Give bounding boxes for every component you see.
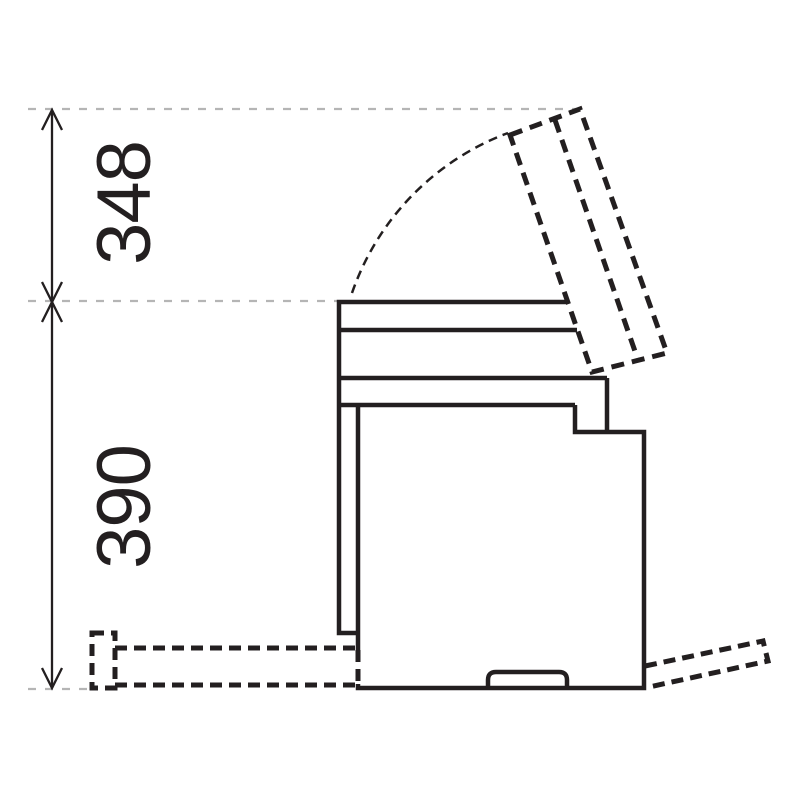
dimension-label-lower: 390 (82, 445, 167, 569)
lid-swing-arc (352, 133, 508, 293)
input-tray-end-cap (92, 633, 115, 688)
output-tray-extended (645, 641, 768, 687)
bottom-foot (488, 672, 567, 688)
printer-side-dimension-diagram: 348 390 (0, 0, 800, 800)
dimension-labels: 348 390 (82, 141, 167, 569)
dimension-diagram-page: 348 390 (0, 0, 800, 800)
dimension-label-upper: 348 (82, 141, 167, 265)
output-tray-outline (645, 641, 768, 687)
cover-outline (510, 109, 667, 372)
lower-body-outline (358, 405, 644, 688)
document-cover-open (510, 109, 667, 372)
input-tray-extended (92, 633, 358, 688)
dimension-indicator (42, 110, 62, 688)
body-top-edge-and-left-wall (339, 302, 566, 633)
device-body (339, 302, 644, 688)
